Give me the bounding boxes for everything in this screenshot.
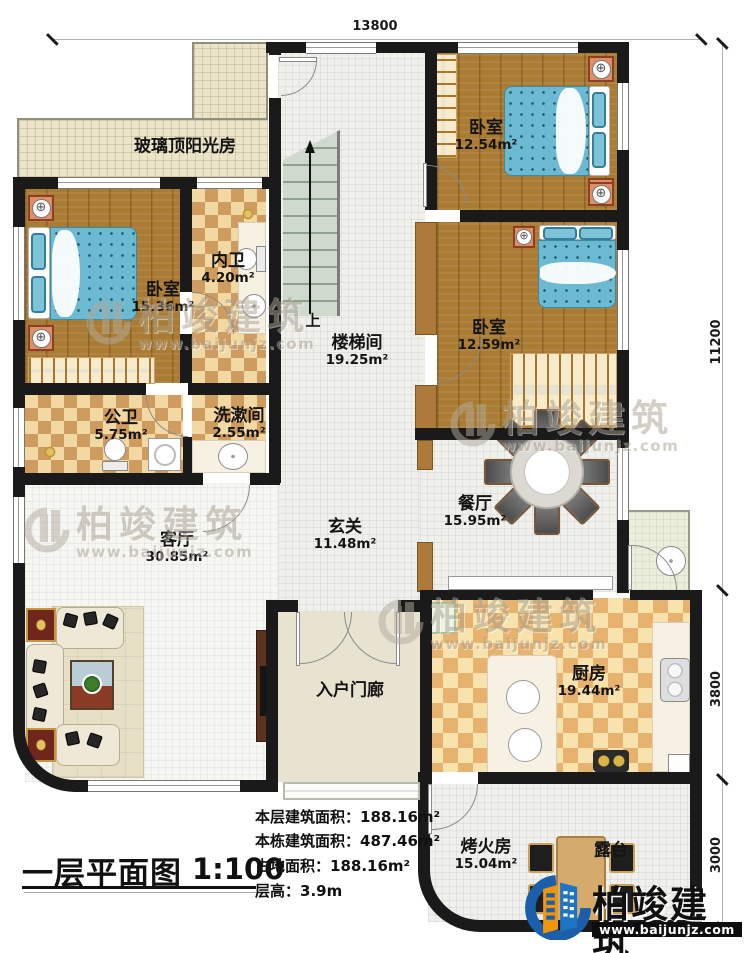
nightstand: ⊕ [588, 56, 614, 82]
wall [617, 42, 629, 83]
cushion [32, 659, 47, 674]
room-label-dining: 餐厅15.95m² [444, 495, 507, 529]
info-value: 487.46m² [360, 832, 440, 850]
wall [417, 440, 433, 470]
company-logo: 柏竣建筑 www.baijunjz.com [524, 874, 744, 940]
fire-room-name: 烤火房 [455, 838, 518, 857]
ensuite-area: 4.20m² [201, 271, 254, 286]
room-label-bedroom2: 卧室12.54m² [455, 119, 518, 153]
toilet [256, 246, 266, 272]
bedroom3-area: 12.59m² [458, 338, 521, 353]
dining-table-top [524, 449, 570, 495]
info-floor-area: 本层建筑面积：188.16m² [255, 806, 440, 827]
info-label: 本层建筑面积： [255, 808, 360, 826]
island-basin [506, 680, 540, 714]
info-land-area: 占地面积：188.16m² [255, 855, 410, 876]
nightstand: ⊕ [28, 195, 54, 221]
nightstand: ⊕ [513, 226, 535, 248]
dimension-top-value: 13800 [340, 19, 410, 34]
wardrobe [28, 357, 155, 384]
plant-icon [82, 674, 102, 694]
window [13, 408, 25, 467]
window [13, 497, 25, 563]
kitchen-name: 厨房 [558, 665, 621, 684]
living-area: 30.85m² [146, 550, 209, 565]
room-label-sunroom: 玻璃顶阳光房 [134, 137, 236, 156]
stairwell-area: 19.25m² [326, 353, 389, 368]
dining-chair [534, 505, 560, 535]
wall [13, 473, 203, 485]
island-basin [508, 728, 542, 762]
wall [478, 772, 702, 784]
room-label-fire-room: 烤火房15.04m² [455, 838, 518, 872]
bedroom1-area: 15.36m² [132, 300, 195, 315]
wall [13, 383, 146, 395]
corner-table [26, 608, 56, 642]
living-name: 客厅 [146, 531, 209, 550]
pillow [592, 92, 606, 128]
wall [180, 334, 192, 383]
wardrobe [510, 353, 617, 426]
fridge [430, 602, 456, 634]
company-logo-url: www.baijunjz.com [592, 922, 742, 937]
info-value: 188.16m² [360, 808, 440, 826]
porch-name: 入户门廊 [316, 681, 384, 700]
lamp-icon: ⊕ [32, 199, 51, 218]
lamp-icon [44, 446, 56, 458]
foyer-area: 11.48m² [314, 537, 377, 552]
public-bath-name: 公卫 [94, 409, 147, 428]
window [617, 83, 629, 150]
pillow [31, 276, 46, 313]
wall [180, 189, 192, 292]
info-label: 占地面积： [255, 857, 330, 875]
dimension-right-middle-value: 3800 [709, 659, 723, 719]
foyer-name: 玄关 [314, 518, 377, 537]
info-value: 3.9m [300, 882, 342, 900]
stairs-up-label: 上 [305, 313, 320, 330]
dining-area: 15.95m² [444, 514, 507, 529]
wall [460, 210, 627, 222]
window [617, 448, 629, 520]
wall [269, 98, 281, 483]
title-underline [22, 886, 256, 889]
bed-sheet [540, 262, 616, 284]
wall [160, 177, 197, 189]
washroom-area: 2.55m² [212, 426, 265, 441]
window [197, 177, 262, 189]
stairs-direction-label: 上 [305, 313, 320, 330]
info-value: 188.16m² [330, 857, 410, 875]
room-label-kitchen: 厨房19.44m² [558, 665, 621, 699]
washroom-name: 洗漱间 [212, 407, 265, 426]
bedroom2-area: 12.54m² [455, 138, 518, 153]
title-underline-thin [24, 892, 256, 893]
gas-stove [593, 750, 629, 772]
lamp-icon: ⊕ [592, 60, 611, 79]
lamp-icon: ⊕ [516, 229, 532, 245]
bedroom1-name: 卧室 [132, 281, 195, 300]
pillow [592, 132, 606, 168]
stairs [283, 130, 340, 316]
wall [250, 473, 280, 485]
wall [437, 42, 458, 53]
wall [420, 600, 432, 792]
window [617, 250, 629, 350]
public-bath-area: 5.75m² [94, 428, 147, 443]
company-logo-brand: 柏竣建筑 [592, 886, 744, 953]
window [458, 42, 578, 54]
washing-machine [148, 438, 181, 471]
lamp-icon: ⊕ [32, 329, 51, 348]
info-label: 本栋建筑面积： [255, 832, 360, 850]
stairwell-name: 楼梯间 [326, 334, 389, 353]
sink [218, 443, 248, 470]
dining-name: 餐厅 [444, 495, 507, 514]
sideboard [448, 576, 613, 590]
floor-plan: ⊕ ⊕ ⊕ ⊕ ⊕ ⊕ [0, 0, 750, 953]
info-building-area: 本栋建筑面积：487.46m² [255, 830, 440, 851]
wall [617, 150, 629, 250]
pillow [579, 227, 613, 240]
sunroom-name: 玻璃顶阳光房 [134, 137, 236, 156]
dimension-right-top-value: 11200 [709, 312, 723, 372]
dimension-line-right [722, 45, 723, 930]
wall [269, 42, 281, 55]
pillow [31, 233, 46, 270]
kitchen-sink [660, 658, 690, 702]
wall [415, 385, 437, 430]
appliance [668, 754, 690, 773]
info-storey-height: 层高：3.9m [255, 880, 342, 901]
washer-door-icon [154, 444, 176, 466]
bedroom3-name: 卧室 [458, 319, 521, 338]
nightstand: ⊕ [588, 182, 614, 206]
wall [13, 177, 25, 227]
lamp-icon: ⊕ [592, 185, 611, 204]
room-label-public-bath: 公卫5.75m² [94, 409, 147, 443]
stairs-up-arrow [309, 150, 311, 314]
nightstand: ⊕ [28, 325, 54, 351]
ensuite-name: 内卫 [201, 252, 254, 271]
sink [242, 294, 266, 318]
bed-sheet [556, 88, 586, 174]
room-label-foyer: 玄关11.48m² [314, 518, 377, 552]
wall [266, 600, 298, 612]
stairs-up-arrow-head [305, 140, 315, 153]
dimension-line-top [52, 39, 702, 40]
wall [266, 600, 278, 792]
wall [415, 222, 437, 335]
bed-sheet [52, 230, 80, 317]
terrace-name: 露台 [594, 841, 628, 860]
wall [183, 437, 192, 473]
terrace-chair [528, 843, 554, 873]
fire-room-area: 15.04m² [455, 857, 518, 872]
lamp-icon [242, 208, 254, 220]
company-logo-icon [524, 874, 592, 940]
window [88, 780, 240, 792]
toilet [102, 461, 128, 471]
info-label: 层高： [255, 882, 300, 900]
pillow [543, 227, 577, 240]
cushion [83, 611, 98, 626]
bedroom2-name: 卧室 [455, 119, 518, 138]
porch-step [283, 782, 420, 800]
wall [420, 590, 593, 600]
dining-chair [580, 459, 610, 485]
room-label-washroom: 洗漱间2.55m² [212, 407, 265, 441]
wall [13, 563, 25, 702]
kitchen-area: 19.44m² [558, 684, 621, 699]
window [58, 177, 160, 189]
room-label-living: 客厅30.85m² [146, 531, 209, 565]
room-label-terrace: 露台 [594, 841, 628, 860]
room-label-porch: 入户门廊 [316, 681, 384, 700]
wall [417, 542, 433, 592]
door-leaf [396, 612, 400, 666]
wall [415, 428, 627, 440]
room-label-ensuite: 内卫4.20m² [201, 252, 254, 286]
window [13, 227, 25, 320]
window [306, 42, 376, 54]
room-label-bedroom1: 卧室15.36m² [132, 281, 195, 315]
room-label-bedroom3: 卧室12.59m² [458, 319, 521, 353]
wall [188, 383, 280, 395]
room-label-stairwell: 楼梯间19.25m² [326, 334, 389, 368]
